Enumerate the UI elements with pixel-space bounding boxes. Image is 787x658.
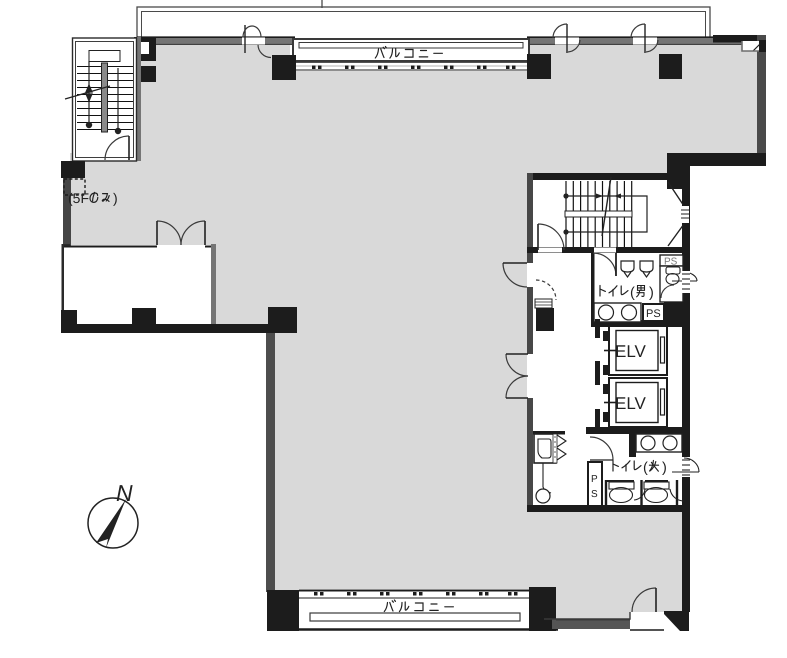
svg-text:): )	[662, 460, 667, 476]
svg-text:N: N	[116, 480, 133, 506]
svg-text:): )	[113, 190, 118, 206]
svg-text:PS: PS	[646, 308, 661, 320]
svg-text:(5F: (5F	[68, 190, 89, 206]
svg-text:ELV: ELV	[615, 342, 647, 361]
svg-text:): )	[649, 285, 654, 301]
svg-text:(: (	[630, 285, 635, 301]
svg-text:P: P	[591, 474, 598, 485]
svg-text:ELV: ELV	[615, 394, 647, 413]
svg-text:(: (	[643, 460, 648, 476]
svg-text:S: S	[591, 489, 598, 500]
